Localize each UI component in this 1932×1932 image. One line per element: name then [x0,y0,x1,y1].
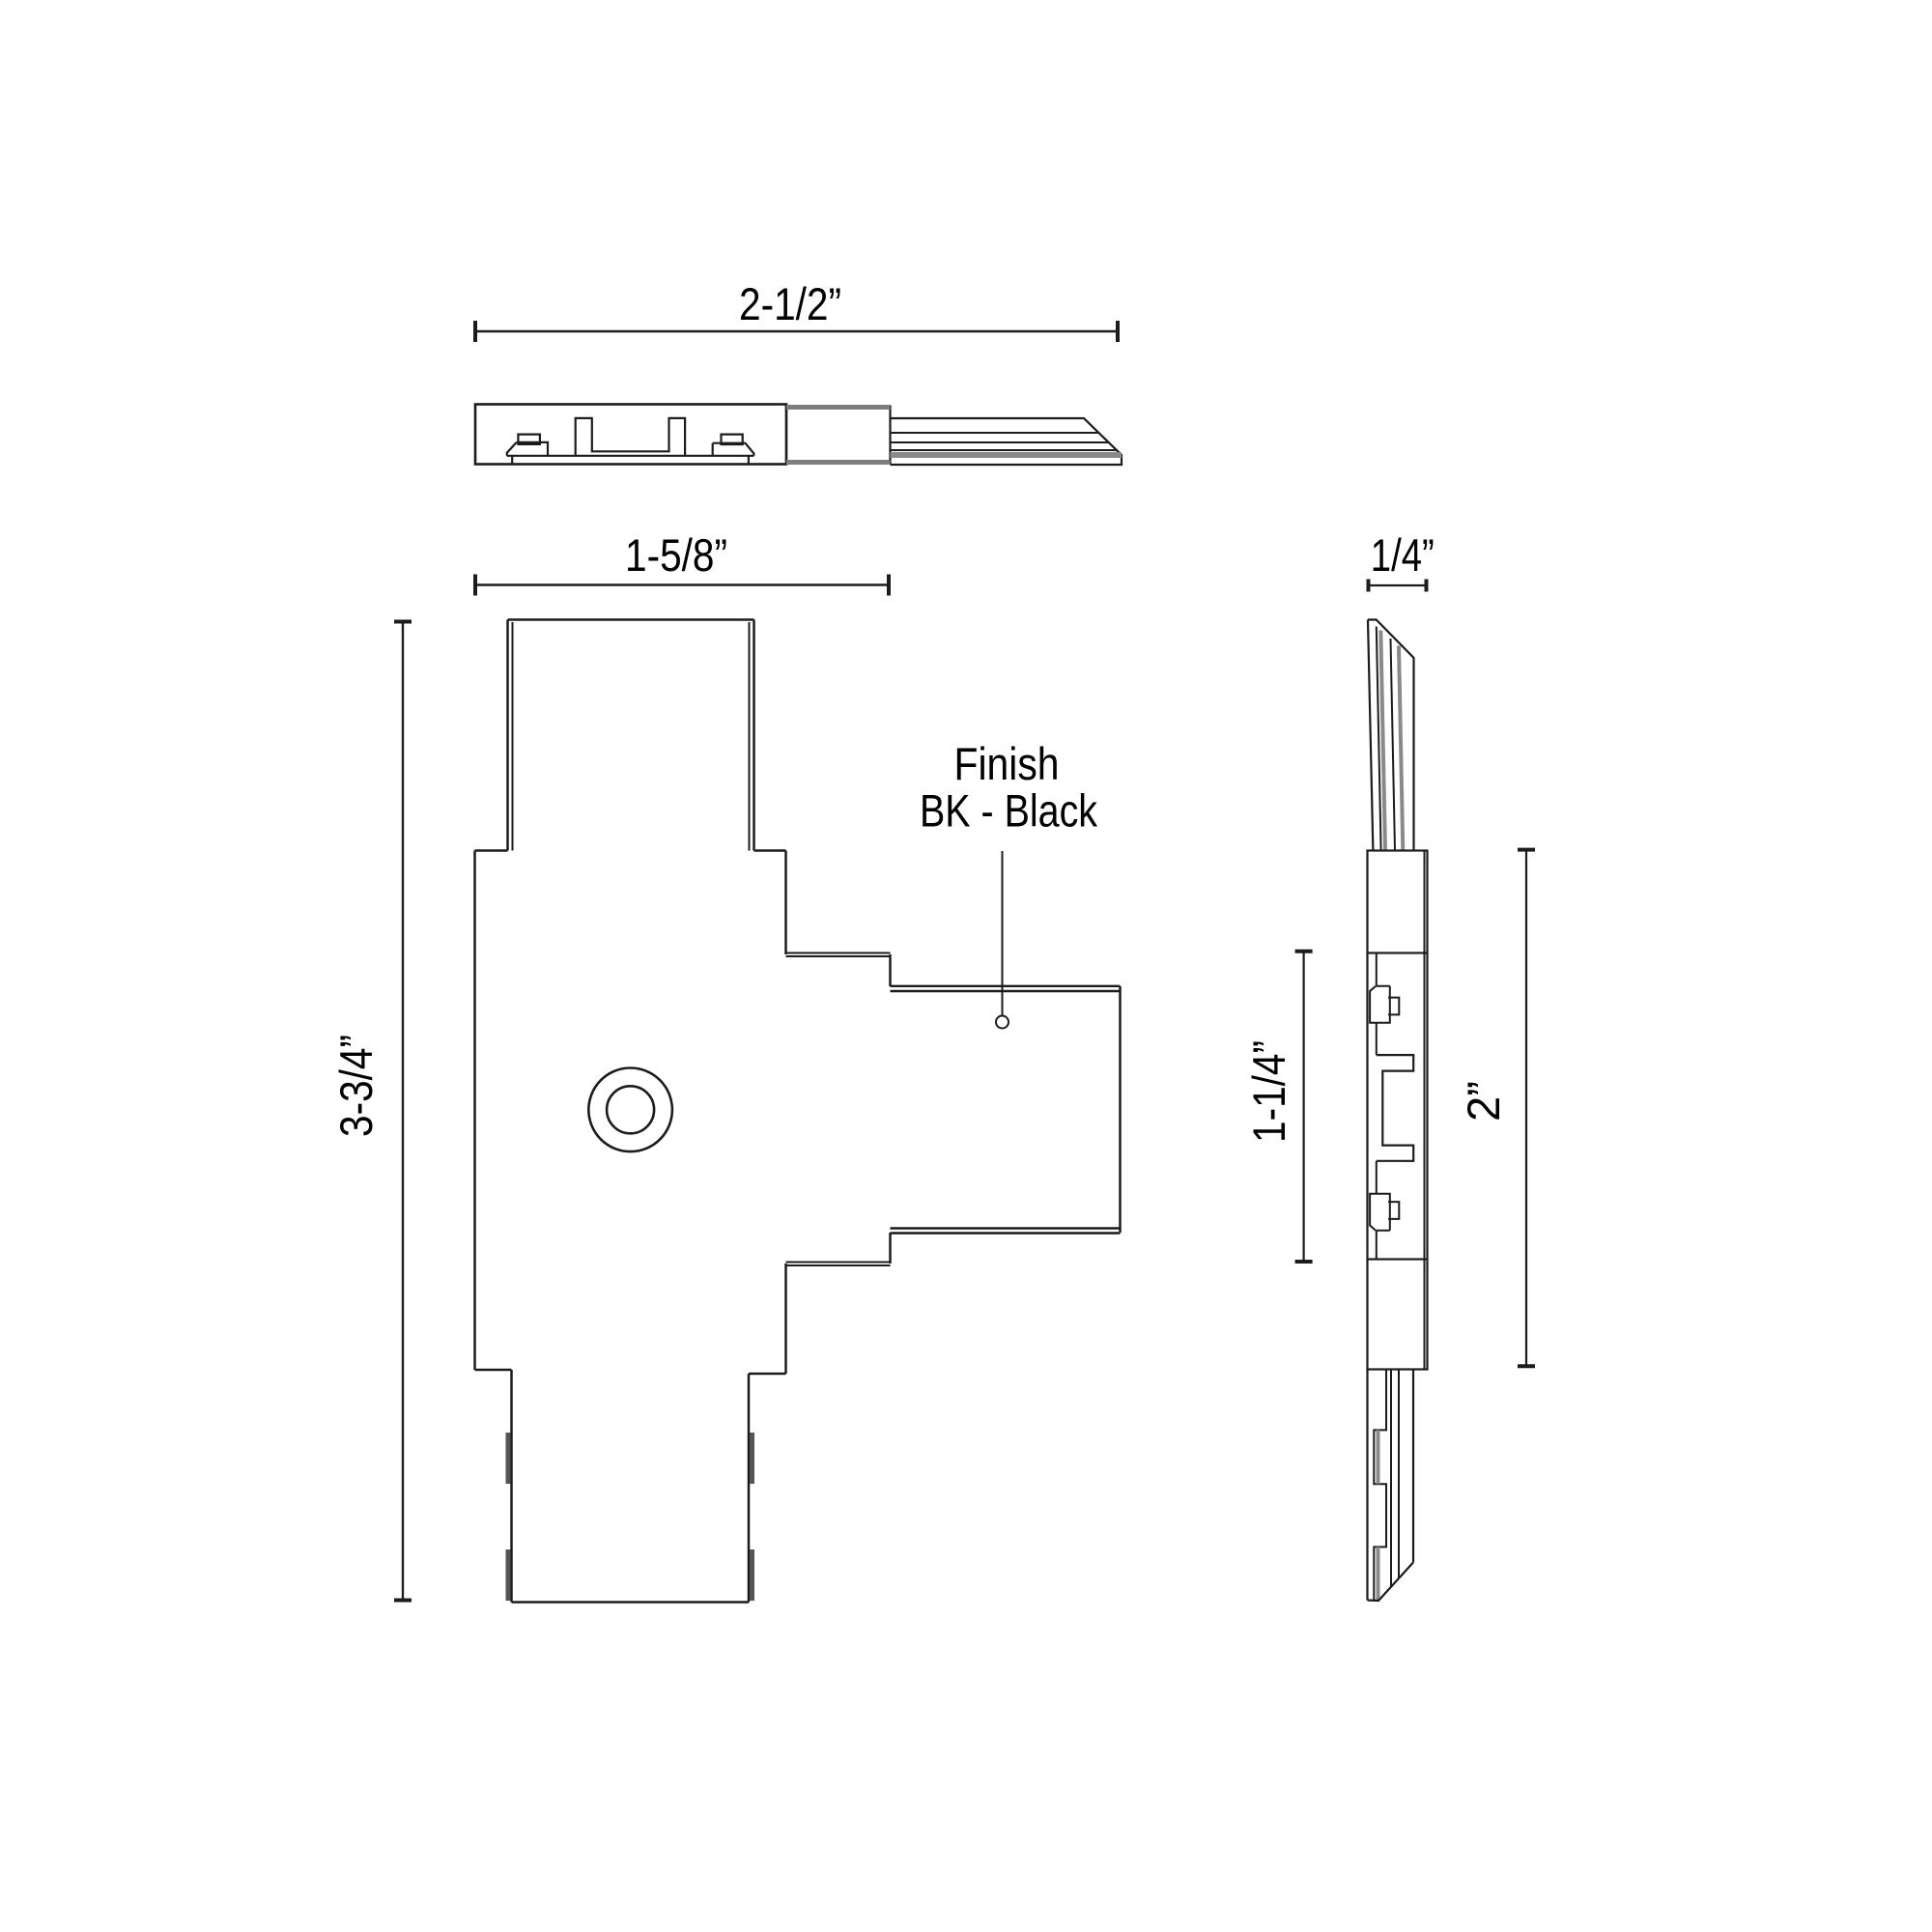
svg-text:1-5/8”: 1-5/8” [625,529,727,581]
svg-text:1/4”: 1/4” [1371,529,1435,581]
svg-text:2”: 2” [1458,1081,1509,1122]
svg-text:Finish: Finish [954,738,1060,789]
svg-text:1-1/4”: 1-1/4” [1243,1040,1294,1143]
svg-text:2-1/2”: 2-1/2” [739,278,841,329]
svg-text:3-3/4”: 3-3/4” [330,1035,382,1137]
svg-text:BK - Black: BK - Black [920,785,1097,837]
